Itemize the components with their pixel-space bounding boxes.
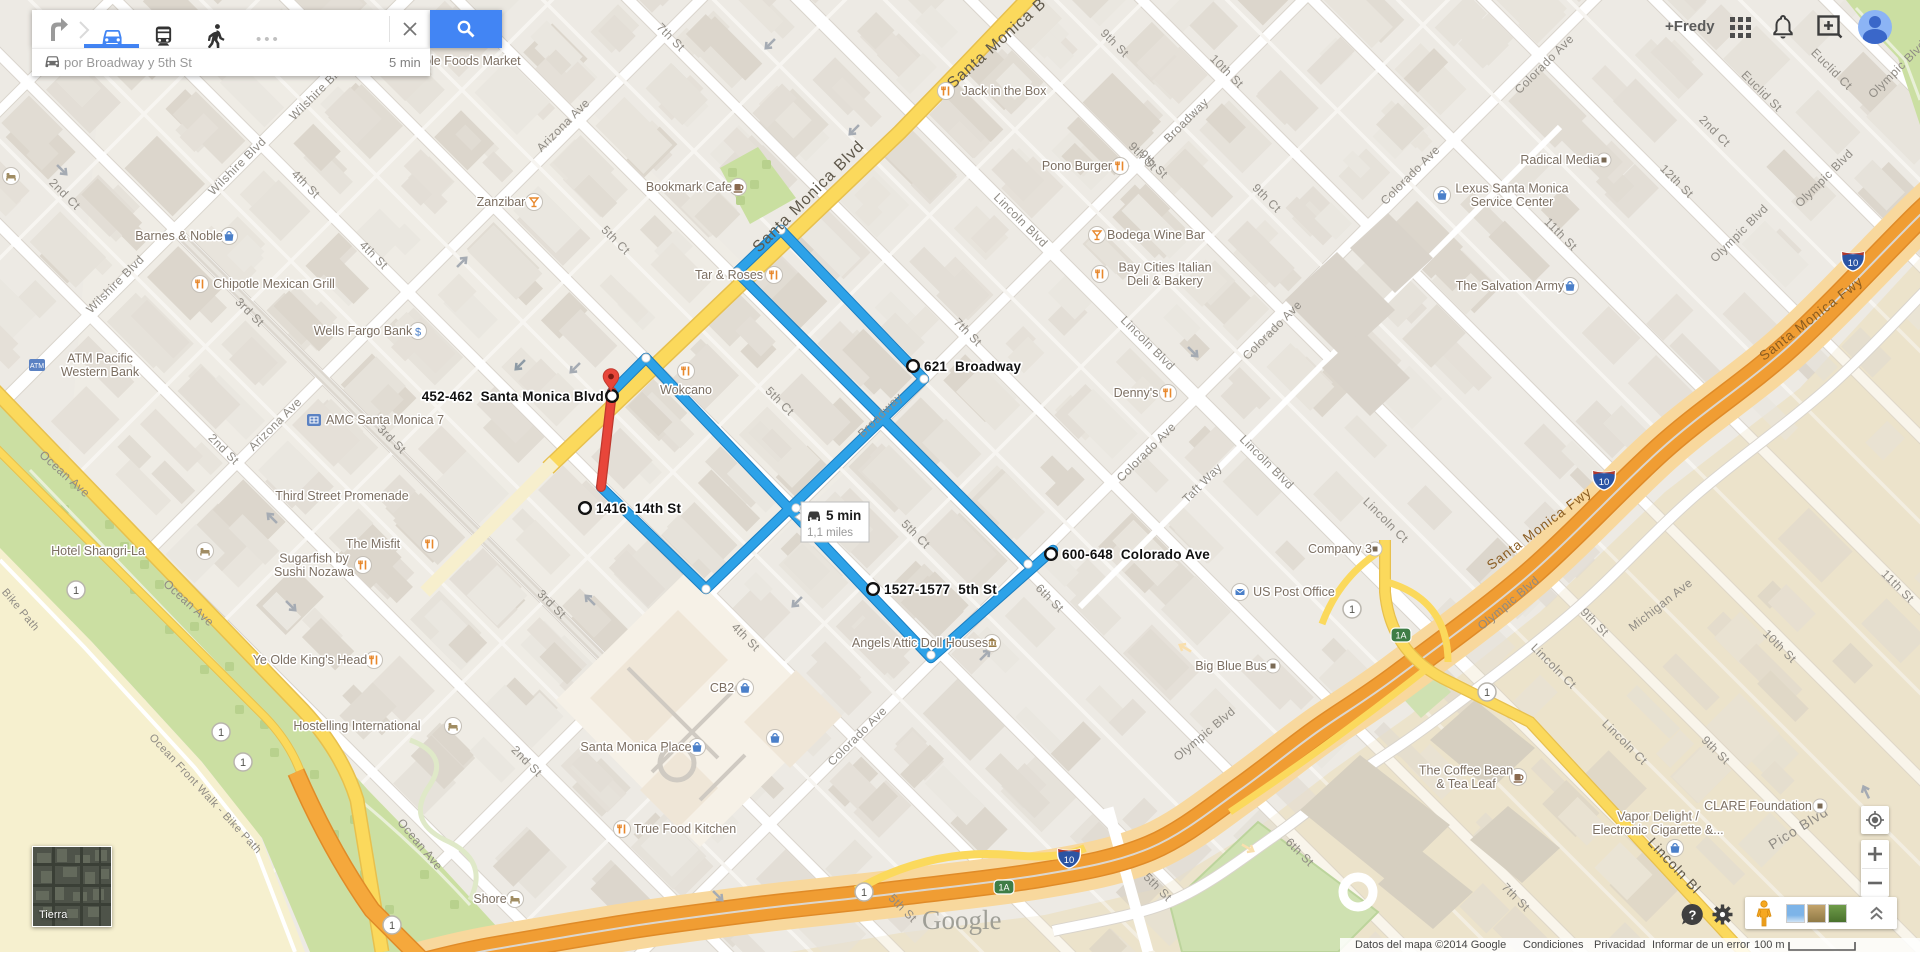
svg-text:Jack in the Box: Jack in the Box	[962, 84, 1048, 98]
svg-text:1: 1	[389, 920, 395, 932]
svg-text:US Post Office: US Post Office	[1253, 585, 1335, 599]
svg-text:& Tea Leaf: & Tea Leaf	[1436, 777, 1496, 791]
svg-text:Pono Burger: Pono Burger	[1042, 159, 1112, 173]
svg-text:600-648 Colorado Ave: 600-648 Colorado Ave	[1062, 547, 1210, 562]
svg-text:1: 1	[73, 585, 79, 597]
svg-text:Third Street Promenade: Third Street Promenade	[275, 489, 408, 503]
svg-text:1: 1	[1484, 687, 1490, 699]
svg-text:Bookmark Cafe: Bookmark Cafe	[646, 180, 732, 194]
svg-text:5 min: 5 min	[826, 508, 861, 523]
svg-text:ATM: ATM	[30, 363, 44, 370]
svg-text:True Food Kitchen: True Food Kitchen	[634, 822, 736, 836]
svg-text:Western Bank: Western Bank	[61, 365, 140, 379]
svg-text:Lexus Santa Monica: Lexus Santa Monica	[1455, 182, 1568, 196]
svg-text:Sushi Nozawa: Sushi Nozawa	[274, 565, 354, 579]
svg-text:Zanzibar: Zanzibar	[477, 195, 526, 209]
svg-text:Wokcano: Wokcano	[660, 383, 712, 397]
svg-text:10: 10	[1064, 855, 1075, 866]
svg-text:Radical Media: Radical Media	[1520, 153, 1599, 167]
svg-text:1: 1	[240, 757, 246, 769]
svg-text:Wells Fargo Bank: Wells Fargo Bank	[314, 324, 413, 338]
svg-text:Chipotle Mexican Grill: Chipotle Mexican Grill	[213, 277, 335, 291]
svg-text:Hotel Shangri-La: Hotel Shangri-La	[51, 544, 145, 558]
svg-text:1: 1	[1349, 604, 1355, 616]
svg-text:1: 1	[218, 727, 224, 739]
svg-text:ATM Pacific: ATM Pacific	[67, 352, 133, 366]
svg-text:Deli & Bakery: Deli & Bakery	[1127, 274, 1203, 288]
svg-text:Bay Cities Italian: Bay Cities Italian	[1118, 261, 1211, 275]
svg-text:1A: 1A	[998, 883, 1009, 893]
svg-text:$: $	[415, 327, 421, 339]
svg-text:Tar & Roses: Tar & Roses	[695, 268, 763, 282]
svg-text:Shore: Shore	[473, 892, 506, 906]
svg-text:Hostelling International: Hostelling International	[293, 719, 420, 733]
svg-text:1,1 miles: 1,1 miles	[807, 527, 853, 539]
svg-text:1A: 1A	[1395, 631, 1406, 641]
svg-text:?: ?	[1689, 908, 1697, 923]
svg-text:1416 14th St: 1416 14th St	[596, 501, 681, 516]
svg-text:Barnes & Noble: Barnes & Noble	[135, 229, 223, 243]
svg-text:Angels Attic Doll Houses: Angels Attic Doll Houses	[852, 636, 988, 650]
svg-text:Big Blue Bus: Big Blue Bus	[1195, 659, 1267, 673]
svg-text:10: 10	[1848, 258, 1859, 269]
svg-text:The Coffee Bean: The Coffee Bean	[1419, 764, 1513, 778]
svg-text:CLARE Foundation: CLARE Foundation	[1704, 799, 1812, 813]
svg-text:Bodega Wine Bar: Bodega Wine Bar	[1107, 228, 1205, 242]
svg-text:CB2: CB2	[710, 681, 734, 695]
svg-text:Electronic Cigarette &...: Electronic Cigarette &...	[1592, 823, 1723, 837]
svg-text:Service Center: Service Center	[1471, 195, 1554, 209]
svg-text:Google: Google	[922, 905, 1002, 935]
svg-text:AMC Santa Monica 7: AMC Santa Monica 7	[326, 413, 444, 427]
svg-text:Denny's: Denny's	[1114, 386, 1159, 400]
svg-text:Santa Monica Place: Santa Monica Place	[580, 740, 691, 754]
svg-text:1: 1	[861, 887, 867, 899]
svg-text:The Salvation Army: The Salvation Army	[1456, 279, 1565, 293]
svg-text:Ye Olde King's Head: Ye Olde King's Head	[253, 653, 368, 667]
svg-text:621 Broadway: 621 Broadway	[924, 359, 1021, 374]
svg-text:Vapor Delight /: Vapor Delight /	[1617, 810, 1699, 824]
svg-text:The Misfit: The Misfit	[346, 537, 401, 551]
svg-text:Company 3: Company 3	[1308, 542, 1372, 556]
svg-text:1527-1577 5th St: 1527-1577 5th St	[884, 582, 997, 597]
svg-text:452-462 Santa Monica Blvd: 452-462 Santa Monica Blvd	[422, 389, 604, 404]
svg-text:10: 10	[1599, 477, 1610, 488]
svg-text:Sugarfish by: Sugarfish by	[279, 552, 349, 566]
